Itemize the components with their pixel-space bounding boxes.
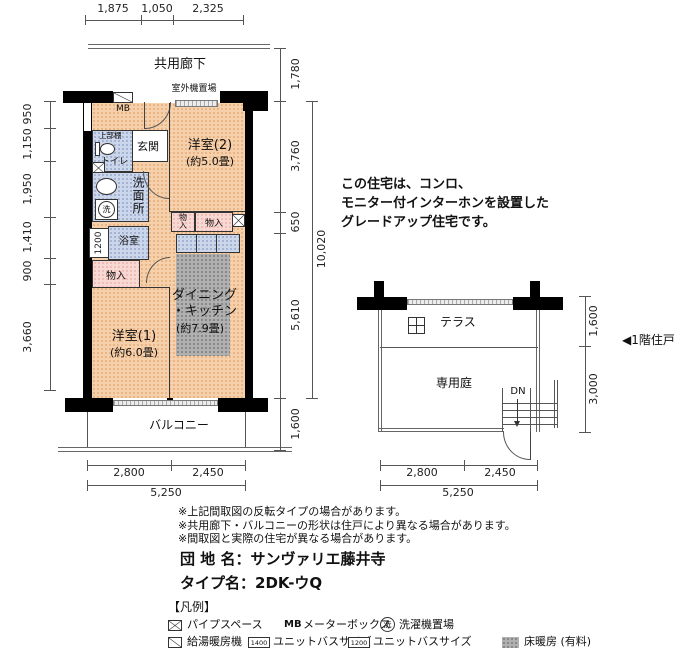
dim-label: 1,050 [141, 3, 173, 15]
dim-tick [87, 460, 88, 471]
wall [357, 297, 407, 310]
room1-size-label: (約6.0畳) [100, 347, 168, 360]
stair-arrow-line [517, 399, 518, 422]
stair-arrow-head [514, 421, 520, 427]
dim-tick [44, 390, 56, 391]
laundry-circle-icon: 洗 [380, 617, 395, 632]
dim-tick [243, 15, 244, 25]
dim-label: 2,450 [180, 467, 236, 479]
wall [530, 281, 540, 297]
dim-tick [380, 480, 381, 491]
dim-tick [171, 460, 172, 471]
balcony-label: バルコニー [140, 419, 218, 433]
corridor-edge-line [88, 44, 270, 49]
closet-label: 物入 [179, 214, 188, 230]
room1-label: 洋室(1) [100, 330, 168, 345]
notes-block: ※上記間取図の反転タイプの場合があります。 ※共用廊下・バルコニーの形状は住戸に… [178, 505, 516, 546]
counter-divider [196, 234, 197, 253]
dim-tick [274, 398, 286, 399]
dim-label-total: 5,250 [138, 487, 194, 499]
note-line: ※上記間取図の反転タイプの場合があります。 [178, 505, 516, 519]
dk-label-1: ダイニング [172, 289, 237, 304]
garden-fence [378, 428, 504, 432]
description-line: グレードアップ住宅です。 [341, 213, 549, 232]
dim-tick [537, 480, 538, 491]
closet-lower: 物入 [92, 260, 140, 288]
balcony-side-line [87, 412, 88, 447]
dim-label: 1,600 [290, 402, 302, 446]
dk-size-label: (約7.9畳) [176, 323, 224, 336]
dim-tick [44, 161, 56, 162]
bath-size-label: 1200 [93, 223, 105, 263]
legend-water-heater: 給湯暖房機 [187, 636, 242, 649]
dim-label: 2,800 [101, 467, 157, 479]
dim-tick [274, 450, 286, 451]
dim-tick [44, 101, 56, 102]
dim-label: 3,660 [22, 315, 34, 359]
dim-line [312, 101, 313, 398]
closet-small: 物入 [171, 212, 195, 232]
dim-tick [464, 460, 465, 471]
dim-label: 1,600 [588, 299, 600, 343]
stair-tread [502, 417, 557, 418]
room2-label: 洋室(2) [180, 139, 240, 154]
toilet-label: トイレ [101, 157, 128, 167]
closet-wide: 物入 [195, 212, 233, 232]
stair-tread [502, 424, 557, 425]
dim-tick [173, 15, 174, 25]
partition-line [92, 287, 170, 288]
down-label: DN [506, 386, 530, 398]
balcony-window-sill [113, 400, 218, 406]
type-name: タイプ名：2DK-ウQ [180, 575, 322, 592]
closet-label: 物入 [106, 267, 126, 282]
partition-line [169, 103, 170, 212]
kitchen-counter [176, 234, 240, 253]
legend-unit-bath-2: ユニットバスサイズ [373, 636, 472, 649]
terrace-garden-divider [380, 347, 538, 348]
dim-label: 1,875 [85, 3, 141, 15]
bath-label: 浴室 [112, 236, 146, 248]
window-grid-line [416, 318, 417, 333]
gate-leaf [530, 432, 531, 460]
wall [65, 398, 113, 412]
description-text: この住宅は、コンロ、 モニター付インターホンを設置した グレードアップ住宅です。 [341, 175, 549, 232]
dim-label: 1,150 [22, 122, 34, 166]
dim-label: 1,950 [22, 167, 34, 211]
entrance-area: 玄関 [128, 130, 168, 162]
dim-tick [245, 480, 246, 491]
dim-label: 3,760 [290, 134, 302, 178]
dim-tick [44, 258, 56, 259]
toilet-icon [100, 143, 115, 155]
stair-tread [502, 410, 557, 411]
stair-line [557, 380, 558, 428]
floorplan-sheet: 1,875 1,050 2,325 共用廊下 MB 室外機置場 玄関 上部棚 ト… [0, 0, 700, 650]
dim-tick [87, 480, 88, 491]
dim-tick [44, 284, 56, 285]
legend-meter-box: メーターボックス [303, 619, 391, 632]
stair-line [554, 380, 555, 428]
washroom-label: 洗面所 [128, 176, 144, 222]
entrance-label: 玄関 [137, 138, 159, 154]
window-grid-icon [408, 317, 425, 334]
dim-label-total: 10,020 [316, 224, 328, 274]
dim-line [585, 296, 586, 432]
dim-tick [306, 398, 318, 399]
dim-tick [245, 460, 246, 471]
dim-tick [274, 233, 286, 234]
estate-name: 団 地 名：サンヴァリエ藤井寺 [180, 551, 385, 568]
mb-label: MB [110, 104, 136, 114]
dim-tick [579, 296, 591, 297]
room2-size-label: (約5.0畳) [180, 156, 240, 169]
dim-label: 1,780 [290, 52, 302, 96]
dim-label-total: 5,250 [430, 487, 486, 499]
wall [220, 91, 268, 103]
dim-tick [306, 101, 318, 102]
dim-tick [537, 460, 538, 471]
wall [63, 91, 113, 103]
outdoor-unit-label: 室外機置場 [165, 84, 223, 94]
dim-label: 900 [22, 249, 34, 293]
terrace-label: テラス [440, 316, 476, 330]
outdoor-unit-sill [175, 100, 218, 107]
window-sill [407, 299, 513, 305]
bath-1200-icon: 1200 [348, 637, 370, 648]
partition-line [169, 287, 170, 398]
dim-tick [579, 346, 591, 347]
dim-tick [85, 15, 86, 25]
dim-tick [141, 15, 142, 25]
legend-title: 【凡例】 [168, 601, 216, 615]
garden-label: 専用庭 [436, 377, 472, 391]
dim-tick [579, 432, 591, 433]
dim-tick [44, 217, 56, 218]
corridor-label: 共用廊下 [130, 58, 230, 73]
legend-pipe-space: パイプスペース [187, 619, 263, 632]
dim-tick [44, 128, 56, 129]
note-line: ※間取図と実際の住宅が異なる場合があります。 [178, 532, 516, 546]
wall [83, 131, 92, 398]
dim-label: 3,000 [588, 367, 600, 411]
balcony-side-line [245, 412, 246, 447]
dim-line [280, 48, 281, 450]
garden-fence [378, 310, 382, 432]
balcony-edge-line [58, 447, 292, 452]
dim-tick [274, 212, 286, 213]
dim-tick [274, 48, 286, 49]
dk-label-2: ・キッチン [172, 305, 237, 320]
wall-thin [83, 103, 92, 131]
dim-label: 2,450 [472, 467, 528, 479]
floor-heating-swatch [502, 637, 519, 648]
dim-line [85, 20, 243, 21]
dim-label: 2,325 [173, 3, 243, 15]
meter-box-icon [113, 92, 133, 103]
pipe-space-icon [168, 620, 182, 631]
pipe-space-icon [232, 214, 245, 227]
dim-label: 5,610 [290, 293, 302, 337]
wall [218, 398, 268, 412]
wall [513, 297, 563, 310]
legend-laundry-space: 洗濯機置場 [399, 619, 454, 632]
laundry-symbol: 洗 [98, 201, 115, 218]
wall [245, 103, 253, 398]
garden-fence [536, 310, 540, 432]
description-line: モニター付インターホンを設置した [341, 194, 549, 213]
dim-label: 2,800 [394, 467, 450, 479]
counter-divider [216, 234, 217, 253]
first-floor-marker: ◀1階住戸 [622, 334, 675, 348]
dim-tick [380, 460, 381, 471]
washing-machine-icon: 洗 [95, 199, 118, 220]
legend-floor-heating: 床暖房 (有料) [524, 636, 591, 649]
washbasin-icon [96, 178, 117, 195]
dim-label: 650 [290, 200, 302, 244]
upper-shelf-label: 上部棚 [99, 132, 122, 141]
dim-line [50, 101, 51, 390]
note-line: ※共用廊下・バルコニーの形状は住戸により異なる場合があります。 [178, 519, 516, 533]
legend-mb-abbr: MB [284, 619, 302, 631]
dim-tick [274, 101, 286, 102]
closet-label: 物入 [205, 216, 223, 229]
water-heater-icon [168, 637, 182, 648]
description-line: この住宅は、コンロ、 [341, 175, 549, 194]
gate-arc [503, 432, 530, 460]
bath-1400-icon: 1400 [248, 637, 270, 648]
wall [374, 281, 384, 297]
stair-tread [502, 403, 557, 404]
